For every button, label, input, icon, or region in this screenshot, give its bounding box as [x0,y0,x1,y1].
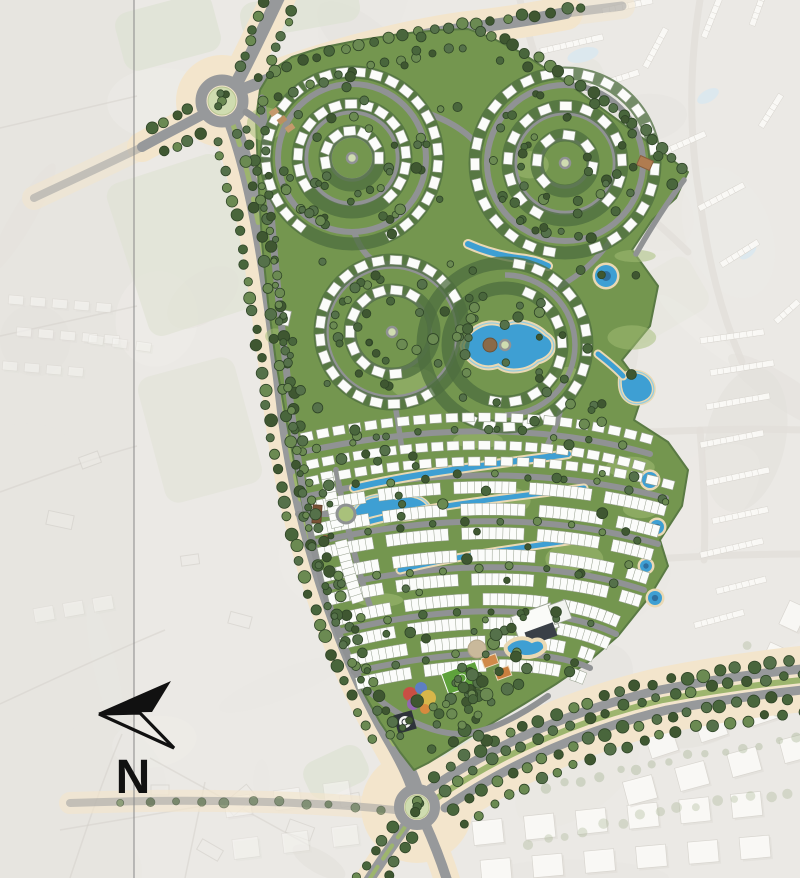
site-plan-screenshot: N [0,0,800,878]
north-label: N [116,751,151,804]
master-plan-svg: N [0,0,800,878]
